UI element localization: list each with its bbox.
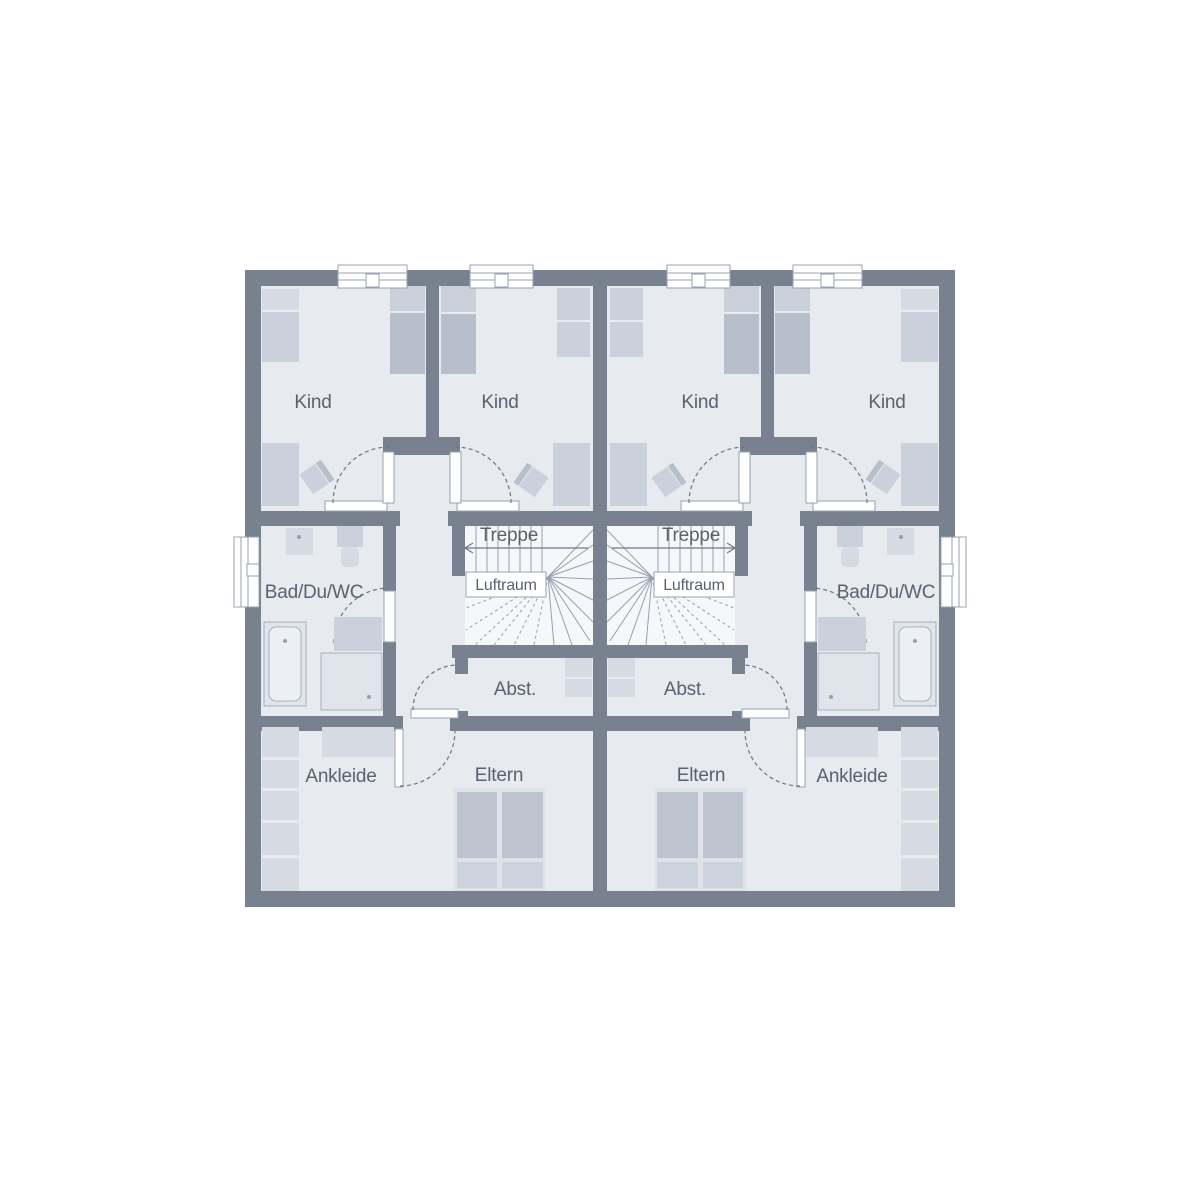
wall-landing-cap <box>383 437 460 455</box>
room-label-treppe-left: Treppe <box>480 525 538 546</box>
bed-pillow <box>457 862 497 888</box>
shower <box>321 653 382 710</box>
room-label-bad-right: Bad/Du/WC <box>837 582 936 603</box>
wall-eltern-top-east <box>450 716 593 731</box>
wardrobe <box>262 823 299 855</box>
room-label-ankleide-left: Ankleide <box>305 766 376 787</box>
wardrobe <box>262 760 299 788</box>
room-label-kind-l2: Kind <box>481 392 518 413</box>
room-label-luftraum-left: Luftraum <box>475 577 537 594</box>
wardrobe <box>262 289 299 310</box>
bed <box>441 314 476 374</box>
desk <box>262 443 299 506</box>
wardrobe <box>557 322 590 357</box>
wall-bad-right-upper <box>383 526 396 591</box>
wall-stair-top <box>448 511 593 526</box>
floor-plan-drawing: Kind Kind Kind Kind Bad/Du/WC Bad/Du/WC … <box>0 0 1200 1200</box>
room-label-abst-right: Abst. <box>664 679 706 700</box>
bed <box>390 313 425 374</box>
room-label-kind-r1: Kind <box>681 392 718 413</box>
door-leaf-abst <box>411 709 458 718</box>
room-label-ankleide-right: Ankleide <box>816 766 887 787</box>
room-label-abst-left: Abst. <box>494 679 536 700</box>
wall-party <box>593 270 607 907</box>
mattress <box>502 792 543 858</box>
room-label-kind-l1: Kind <box>294 392 331 413</box>
wall-bad-top <box>245 511 400 526</box>
room-label-treppe-right: Treppe <box>662 525 720 546</box>
shelf <box>565 658 592 677</box>
wall-stair-left <box>452 526 465 576</box>
room-label-eltern-right: Eltern <box>677 765 725 786</box>
door-leaf-kind-1 <box>383 452 394 503</box>
wall-between-kind-rooms <box>426 285 439 438</box>
door-sill-kind-1 <box>325 501 387 511</box>
mattress <box>457 792 497 858</box>
wardrobe <box>262 791 299 820</box>
room-label-luftraum-right: Luftraum <box>663 577 725 594</box>
door-sill-kind-2 <box>457 501 519 511</box>
floor-plan-page: Kind Kind Kind Kind Bad/Du/WC Bad/Du/WC … <box>0 0 1200 1200</box>
washbasin <box>286 528 313 555</box>
room-label-eltern-left: Eltern <box>475 765 523 786</box>
door-sill-bad <box>384 591 395 642</box>
wc-cistern <box>337 526 363 547</box>
wardrobe <box>262 727 299 757</box>
wall-stair-bottom <box>452 645 593 658</box>
desk <box>553 443 590 506</box>
wall-bad-right-lower <box>383 642 396 718</box>
bed-pillow <box>502 862 543 888</box>
shelf <box>565 679 592 697</box>
door-leaf-eltern <box>395 729 403 787</box>
room-label-kind-r2: Kind <box>868 392 905 413</box>
room-label-bad-left: Bad/Du/WC <box>265 582 364 603</box>
eltern-furniture <box>453 788 545 892</box>
bed-pillow <box>390 286 425 311</box>
bathtub-inner <box>269 627 301 701</box>
wardrobe <box>262 858 299 892</box>
washing-machine <box>334 617 382 651</box>
wc <box>341 547 359 567</box>
wall-abst-left <box>455 658 468 674</box>
door-leaf-kind-2 <box>450 452 461 503</box>
bed-pillow <box>441 286 476 312</box>
wardrobe <box>322 727 394 757</box>
wardrobe <box>262 312 299 362</box>
wardrobe <box>557 288 590 320</box>
